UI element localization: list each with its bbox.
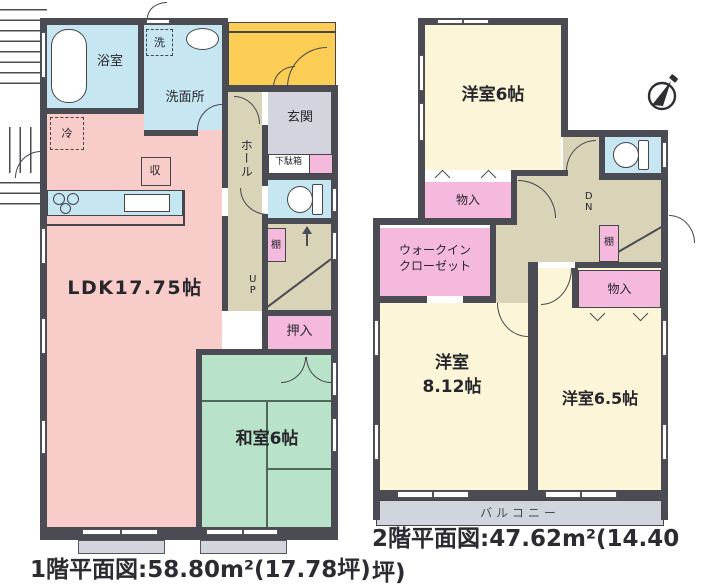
porch-inner-line [228,31,336,33]
room-washitsu-label: 和室6帖 [208,428,326,452]
wall [561,18,568,137]
wall [196,349,338,355]
window [41,318,46,354]
wall [222,216,228,311]
wall [599,173,661,180]
stairs-down-label: DN [581,184,595,220]
window [332,232,337,260]
door-arc [147,2,167,18]
room-entrance-label: 玄関 [272,108,328,128]
wall [463,296,495,303]
hall-floor2 [495,225,599,262]
wall [144,130,198,136]
room-washroom-label: 洗面所 [150,88,220,108]
walk-in-closet-label-line1: ウォークイン [382,242,488,258]
stove-burner-icon [60,203,71,214]
door-opening [0,245,36,252]
shoe-cabinet-side [309,154,333,174]
wall [490,225,496,303]
floor2-caption: 2階平面図:47.62m²(14.40坪) [372,537,712,569]
wall [373,218,380,520]
wall [575,262,661,268]
window [374,424,379,460]
walk-in-closet-label-line2: クローゼット [382,258,488,274]
window [41,420,46,454]
wall [373,218,517,225]
wall [196,355,202,527]
laundry-label: 洗 [146,29,173,56]
toilet-icon [613,142,639,168]
room-ldk-label: LDK17.75帖 [52,276,218,302]
window-mullion [120,529,122,535]
wall [40,18,47,540]
compass-icon [642,72,684,114]
window [662,424,667,460]
window-mullion [462,19,464,24]
floor1-caption: 1階平面図:58.80m²(17.78坪) [30,551,380,583]
wall [40,108,144,114]
room-bedroom65-label: 洋室6.5帖 [540,388,660,410]
room-bath-label: 浴室 [80,52,140,72]
window [332,188,337,212]
window [41,32,46,78]
stairs-2f-treads [0,173,40,209]
room-bedroom8-label-line1: 洋室 [396,352,508,376]
stairs-up-label: UP [245,268,259,302]
toilet-tank-icon [312,184,323,215]
window [662,142,667,168]
tatami-line [266,468,331,470]
closet-storage-upper-label: 物入 [425,188,511,212]
window [374,320,379,356]
wall [262,310,331,316]
room-bedroom6-label: 洋室6帖 [429,84,557,108]
closet-oshiire-label: 押入 [268,320,331,344]
shoe-cabinet-label: 下駄箱 [268,154,309,172]
window [146,19,170,24]
door-opening [0,209,38,215]
toilet-tank-icon [638,140,649,170]
wall [511,170,517,225]
door-opening [0,93,5,121]
wall [561,130,668,137]
counter-edge-line [183,190,185,226]
floor1-plan: 浴室 洗 洗面所 玄関 下駄箱 ホール 冷 収 LDK17.75帖 UP 棚 押… [0,0,713,127]
window [419,55,424,91]
wall [222,110,228,188]
wall [262,218,331,224]
wall [373,296,427,303]
window [419,103,424,141]
kitchen-sink-icon [124,194,170,212]
wall [40,18,228,25]
wall [262,214,268,311]
hall-label: ホール [238,126,254,190]
door-opening [0,215,5,245]
window-mullion [580,491,582,498]
window [662,320,667,356]
floor-plan-canvas: 浴室 洗 洗面所 玄関 下駄箱 ホール 冷 収 LDK17.75帖 UP 棚 押… [0,0,713,588]
stairs-up-arrowhead [302,226,312,234]
window [332,418,337,452]
window [41,228,46,264]
wall [511,170,568,176]
shelf-1f-label: 棚 [266,236,286,256]
door-arc [669,215,695,243]
window [332,362,337,396]
wall [222,18,228,110]
window-mullion [432,491,434,498]
room-bedroom8-label-line2: 8.12帖 [396,376,508,400]
storage-box-label: 収 [141,157,169,184]
tatami-line [266,400,268,527]
shelf-2f-label: 棚 [599,232,619,254]
toilet-icon [287,186,313,213]
counter-edge-line [47,224,185,226]
stairs-up-arrow [306,232,308,246]
wall [528,262,538,490]
window-mullion [242,529,244,535]
washbasin-icon [186,28,219,50]
fridge-label: 冷 [50,117,84,150]
closet-storage-right-label: 物入 [578,277,661,301]
